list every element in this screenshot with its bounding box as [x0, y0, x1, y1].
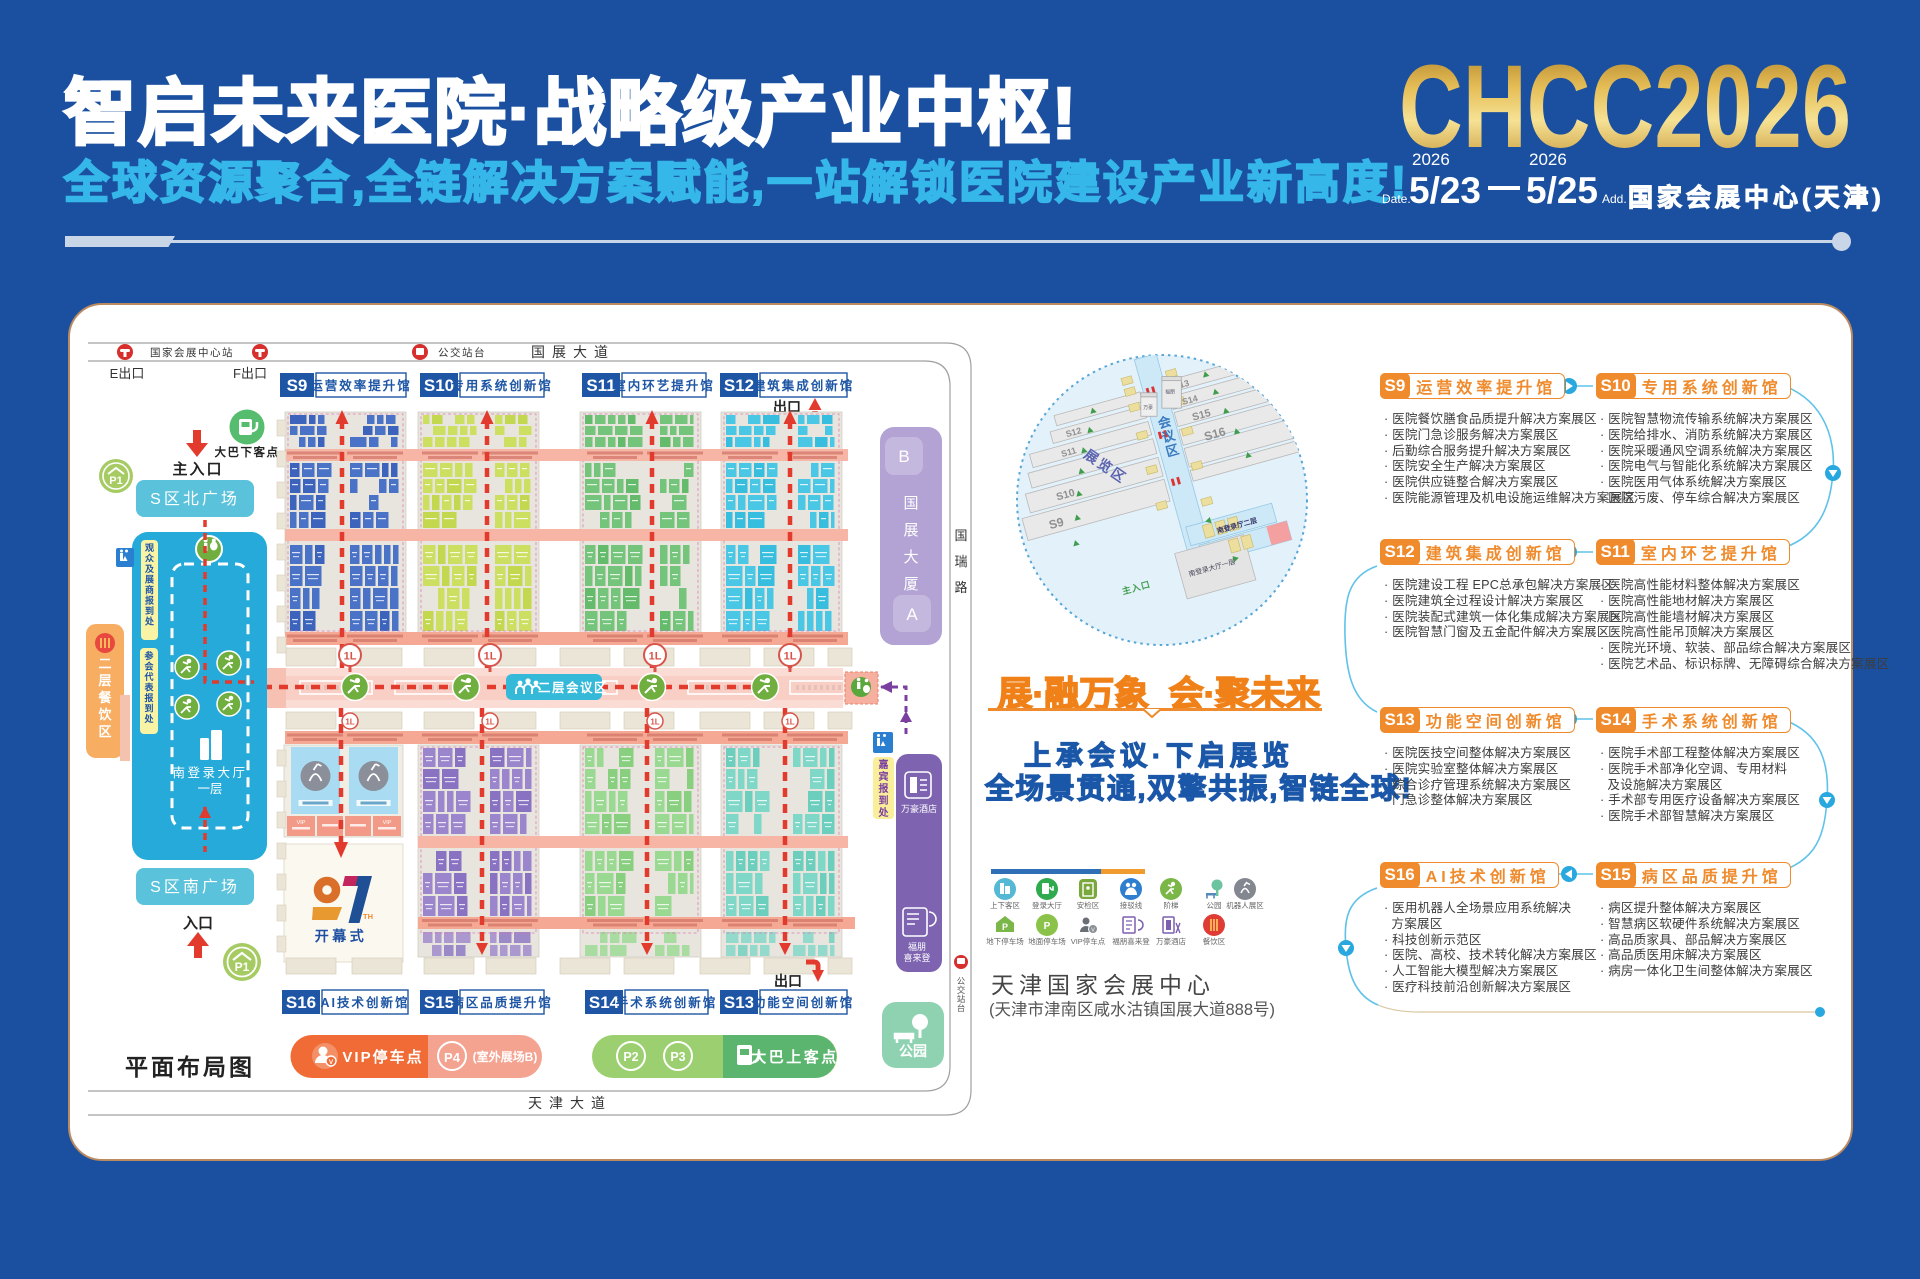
svg-text:福朋喜来登: 福朋喜来登	[1112, 936, 1150, 946]
svg-text:机器人展区: 机器人展区	[1226, 900, 1264, 910]
svg-text:AI技术创新馆: AI技术创新馆	[320, 995, 409, 1010]
svg-text:地面停车场: 地面停车场	[1028, 936, 1066, 946]
svg-text:1L: 1L	[344, 651, 357, 663]
svg-text:VIP停车点: VIP停车点	[342, 1048, 423, 1066]
svg-text:B: B	[898, 447, 909, 466]
svg-text:功能空间创新馆: 功能空间创新馆	[753, 995, 855, 1010]
svg-text:P: P	[1044, 921, 1051, 932]
svg-text:天津大道: 天津大道	[528, 1095, 612, 1111]
svg-text:安检区: 安检区	[1077, 900, 1100, 910]
svg-text:1L: 1L	[485, 718, 494, 727]
svg-text:建筑集成创新馆: 建筑集成创新馆	[753, 378, 855, 393]
svg-text:VIP: VIP	[297, 820, 306, 826]
svg-text:A: A	[906, 605, 918, 624]
svg-text:二层餐饮区: 二层餐饮区	[97, 656, 112, 739]
svg-text:大巴下客点: 大巴下客点	[215, 445, 280, 459]
svg-text:入口: 入口	[183, 915, 213, 932]
svg-text:餐饮区: 餐饮区	[1203, 936, 1226, 946]
svg-text:P: P	[1002, 922, 1008, 932]
svg-text:S12: S12	[724, 376, 754, 395]
svg-text:福朋: 福朋	[908, 941, 926, 952]
svg-text:地下停车场: 地下停车场	[986, 936, 1024, 946]
svg-text:专用系统创新馆: 专用系统创新馆	[451, 378, 553, 393]
svg-text:S16: S16	[286, 993, 316, 1012]
svg-text:公交站台: 公交站台	[438, 346, 486, 359]
svg-text:1L: 1L	[784, 651, 797, 663]
svg-text:万豪酒店: 万豪酒店	[901, 803, 937, 814]
svg-text:接驳线: 接驳线	[1120, 900, 1143, 910]
svg-text:1L: 1L	[785, 718, 794, 727]
svg-text:万豪酒店: 万豪酒店	[1156, 936, 1186, 946]
svg-text:VIP停车点: VIP停车点	[1071, 936, 1106, 946]
svg-text:喜来登: 喜来登	[903, 952, 930, 963]
svg-text:S13: S13	[724, 993, 754, 1012]
svg-text:P2: P2	[623, 1050, 638, 1064]
svg-text:S区南广场: S区南广场	[150, 878, 240, 896]
svg-text:观众及展商报到处: 观众及展商报到处	[144, 543, 155, 627]
svg-text:S15: S15	[424, 993, 454, 1012]
svg-text:1L: 1L	[345, 718, 354, 727]
svg-text:国家会展中心站: 国家会展中心站	[150, 346, 234, 359]
svg-text:国瑞路: 国瑞路	[954, 528, 967, 595]
svg-text:CHCC2026: CHCC2026	[1399, 48, 1851, 158]
svg-text:阶梯: 阶梯	[1164, 900, 1180, 910]
svg-text:室内环艺提升馆: 室内环艺提升馆	[613, 378, 715, 393]
svg-text:大巴上客点: 大巴上客点	[751, 1048, 839, 1066]
svg-text:公交站台: 公交站台	[957, 976, 966, 1013]
svg-text:一层: 一层	[197, 782, 222, 796]
svg-text:S10: S10	[424, 376, 454, 395]
svg-text:南登录大厅: 南登录大厅	[172, 765, 247, 780]
svg-text:国展大道: 国展大道	[531, 344, 615, 360]
svg-text:主入口: 主入口	[172, 460, 223, 478]
svg-text:参会代表报到处: 参会代表报到处	[143, 650, 154, 724]
svg-text:S区北广场: S区北广场	[150, 490, 240, 508]
svg-text:P1: P1	[109, 475, 122, 487]
svg-text:S9: S9	[287, 376, 308, 395]
svg-text:登录大厅: 登录大厅	[1032, 900, 1062, 910]
svg-text:P3: P3	[670, 1050, 685, 1064]
svg-text:P4: P4	[444, 1050, 461, 1065]
svg-text:病区品质提升馆: 病区品质提升馆	[451, 995, 553, 1010]
svg-text:P1: P1	[235, 960, 250, 974]
svg-text:S11: S11	[586, 376, 615, 395]
svg-text:1L: 1L	[650, 718, 659, 727]
svg-text:平面布局图: 平面布局图	[125, 1054, 255, 1080]
svg-text:出口: 出口	[774, 973, 802, 989]
svg-text:上下客区: 上下客区	[990, 900, 1020, 910]
svg-text:1L: 1L	[484, 651, 497, 663]
svg-text:VIP: VIP	[383, 820, 392, 826]
svg-text:公园: 公园	[899, 1043, 927, 1059]
svg-text:公园: 公园	[1207, 901, 1222, 910]
svg-text:运营效率提升馆: 运营效率提升馆	[310, 378, 412, 393]
svg-text:二层会议区: 二层会议区	[538, 680, 608, 695]
svg-text:F出口: F出口	[233, 366, 267, 381]
svg-text:(室外展场B): (室外展场B)	[473, 1049, 538, 1064]
svg-text:1L: 1L	[649, 651, 662, 663]
svg-text:嘉宾报到处: 嘉宾报到处	[878, 758, 890, 819]
svg-text:V: V	[329, 1059, 334, 1066]
svg-text:V: V	[1091, 928, 1095, 934]
svg-text:手术系统创新馆: 手术系统创新馆	[616, 995, 718, 1010]
svg-text:E出口: E出口	[110, 366, 145, 381]
svg-text:开幕式: 开幕式	[315, 928, 368, 944]
svg-text:TH: TH	[363, 912, 373, 921]
